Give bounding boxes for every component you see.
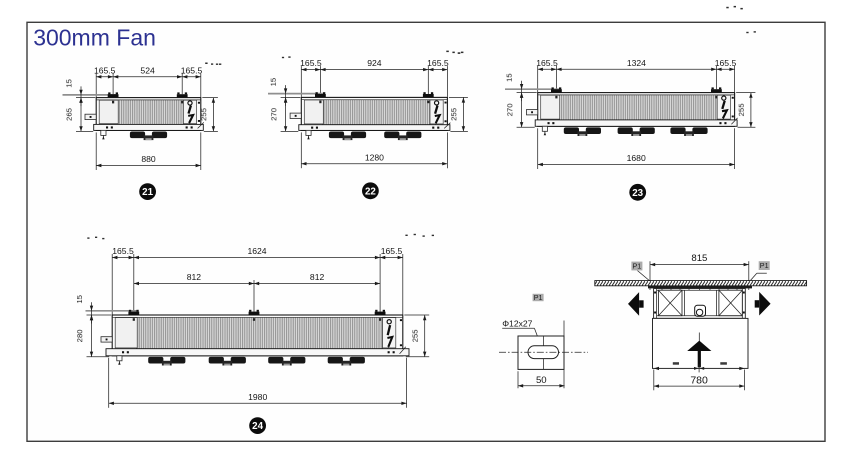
svg-text:812: 812 — [310, 272, 325, 282]
svg-text:P1: P1 — [534, 293, 543, 302]
svg-text:15: 15 — [64, 79, 73, 88]
svg-text:265: 265 — [65, 108, 74, 121]
svg-text:P1: P1 — [633, 262, 642, 271]
svg-text:924: 924 — [367, 58, 382, 68]
svg-text:255: 255 — [737, 103, 746, 116]
svg-text:15: 15 — [75, 295, 84, 304]
svg-text:815: 815 — [691, 253, 707, 264]
svg-text:Φ12x27: Φ12x27 — [502, 319, 532, 329]
svg-text:165.5: 165.5 — [112, 246, 134, 256]
svg-text:812: 812 — [187, 272, 202, 282]
svg-text:P1: P1 — [760, 261, 769, 270]
svg-text:255: 255 — [411, 329, 420, 342]
svg-text:255: 255 — [449, 108, 458, 121]
svg-text:880: 880 — [141, 154, 156, 164]
svg-text:50: 50 — [536, 375, 547, 386]
svg-text:1680: 1680 — [627, 153, 646, 163]
svg-text:15: 15 — [269, 78, 278, 87]
svg-text:270: 270 — [269, 108, 278, 121]
svg-text:165.5: 165.5 — [94, 65, 116, 75]
svg-text:165.5: 165.5 — [181, 65, 203, 75]
svg-text:270: 270 — [505, 103, 514, 116]
svg-text:280: 280 — [75, 329, 84, 342]
svg-text:165.5: 165.5 — [300, 58, 322, 68]
svg-text:165.5: 165.5 — [715, 58, 737, 68]
svg-text:300mm Fan: 300mm Fan — [33, 25, 156, 51]
svg-text:1324: 1324 — [627, 58, 646, 68]
svg-text:23: 23 — [632, 188, 643, 199]
svg-text:165.5: 165.5 — [536, 58, 558, 68]
svg-text:165.5: 165.5 — [381, 246, 403, 256]
svg-text:1980: 1980 — [248, 392, 267, 402]
svg-text:524: 524 — [140, 65, 155, 75]
svg-text:165.5: 165.5 — [427, 58, 449, 68]
svg-text:15: 15 — [505, 73, 514, 82]
svg-text:780: 780 — [690, 374, 708, 386]
svg-text:24: 24 — [252, 421, 263, 432]
svg-text:22: 22 — [365, 186, 376, 197]
svg-text:255: 255 — [199, 108, 208, 121]
svg-text:21: 21 — [142, 187, 153, 198]
svg-text:1280: 1280 — [365, 152, 384, 162]
svg-text:1624: 1624 — [247, 246, 266, 256]
